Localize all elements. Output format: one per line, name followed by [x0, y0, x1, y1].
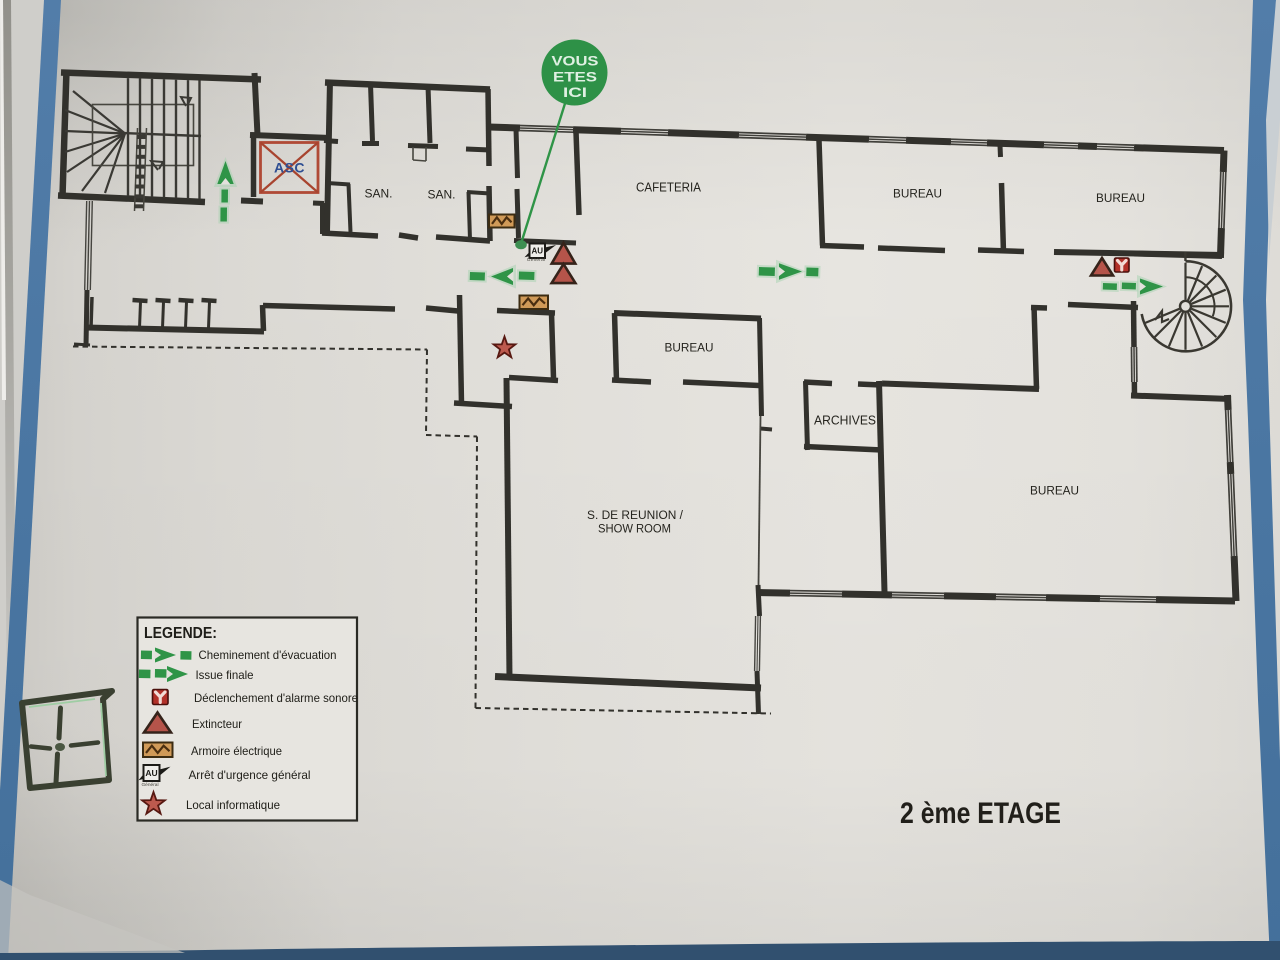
- svg-text:Général: Général: [527, 257, 545, 263]
- svg-text:Arrêt d'urgence général: Arrêt d'urgence général: [189, 768, 311, 782]
- svg-text:Local informatique: Local informatique: [186, 798, 280, 812]
- svg-text:Extincteur: Extincteur: [192, 717, 242, 731]
- svg-text:ICI: ICI: [563, 84, 587, 100]
- svg-text:Général: Général: [141, 782, 158, 788]
- svg-text:S. DE REUNION /: S. DE REUNION /: [587, 510, 684, 522]
- svg-text:AU: AU: [531, 247, 543, 256]
- svg-text:Armoire électrique: Armoire électrique: [191, 744, 282, 758]
- svg-text:ARCHIVES: ARCHIVES: [814, 414, 876, 428]
- svg-text:CAFETERIA: CAFETERIA: [636, 181, 702, 195]
- svg-text:SAN.: SAN.: [365, 189, 393, 201]
- svg-text:BUREAU: BUREAU: [1096, 193, 1145, 205]
- svg-text:BUREAU: BUREAU: [893, 189, 942, 201]
- svg-text:Cheminement d'évacuation: Cheminement d'évacuation: [199, 648, 337, 662]
- svg-text:Déclenchement d'alarme sonore: Déclenchement d'alarme sonore: [194, 691, 358, 705]
- svg-text:AU: AU: [145, 768, 157, 778]
- svg-text:SAN.: SAN.: [428, 190, 456, 202]
- svg-text:Issue finale: Issue finale: [196, 668, 254, 682]
- svg-text:2 ème ETAGE: 2 ème ETAGE: [900, 797, 1061, 830]
- svg-text:ASC: ASC: [274, 160, 305, 176]
- svg-text:SHOW ROOM: SHOW ROOM: [598, 524, 671, 536]
- svg-text:LEGENDE:: LEGENDE:: [144, 625, 217, 642]
- svg-text:BUREAU: BUREAU: [1030, 486, 1079, 498]
- svg-text:VOUS: VOUS: [552, 53, 599, 69]
- svg-text:BUREAU: BUREAU: [665, 343, 714, 355]
- svg-text:ETES: ETES: [553, 69, 597, 85]
